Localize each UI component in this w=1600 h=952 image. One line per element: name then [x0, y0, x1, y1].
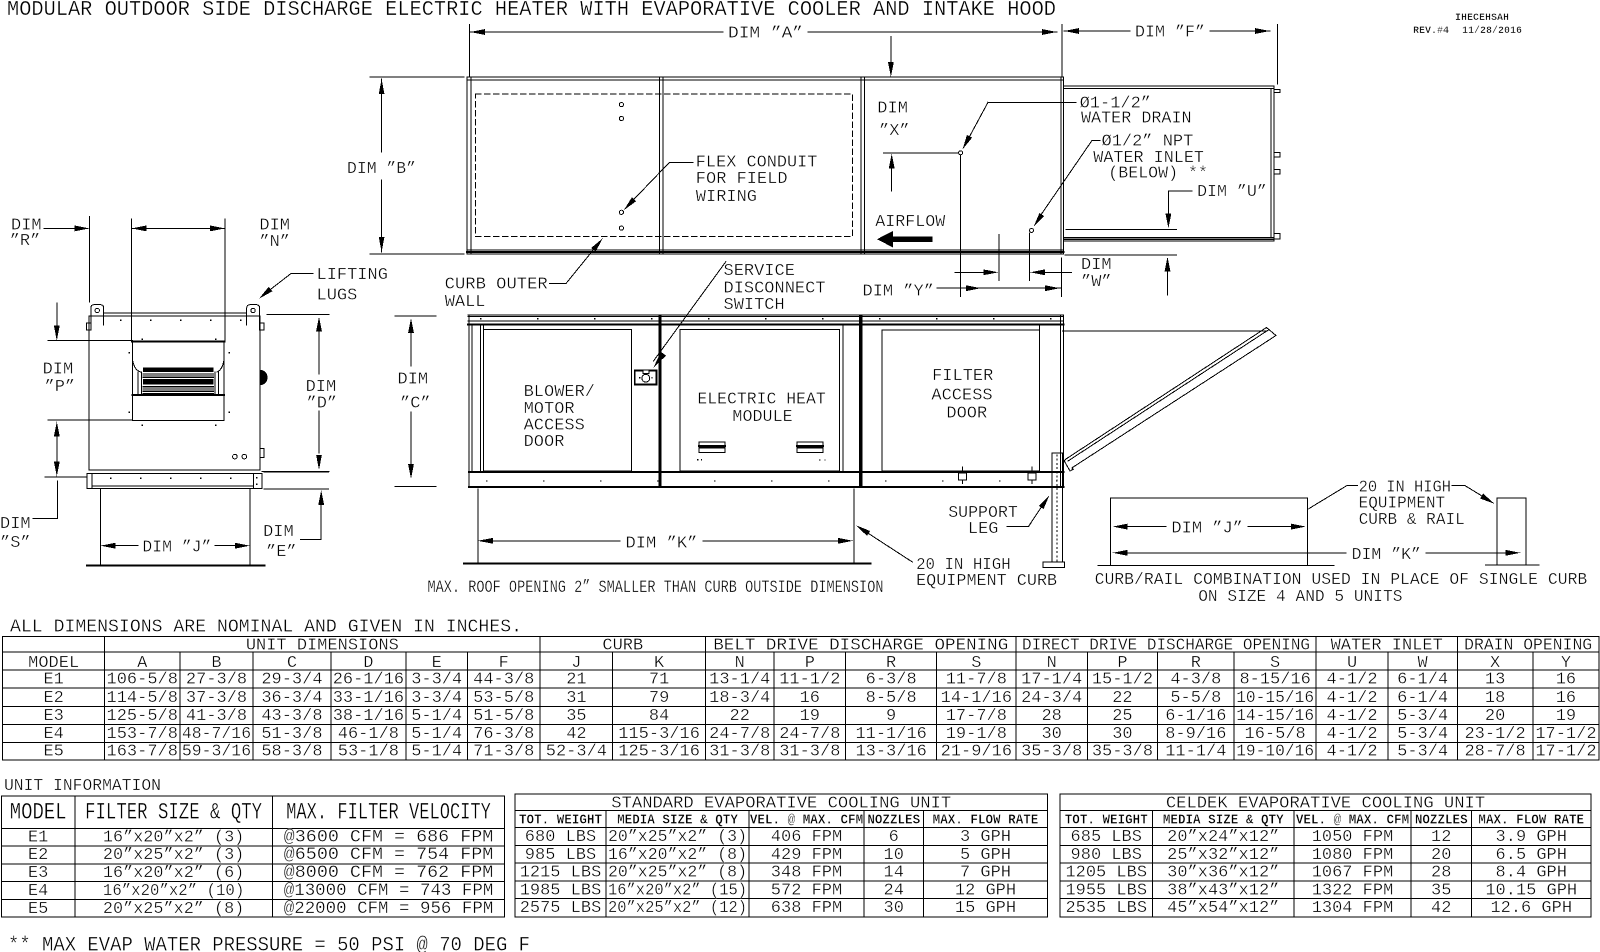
svg-text:71-3/8: 71-3/8 [473, 742, 534, 761]
svg-text:5-1/4: 5-1/4 [411, 725, 462, 744]
svg-text:84: 84 [649, 707, 669, 726]
svg-text:DIM: DIM [398, 371, 429, 390]
svg-text:TOT. WEIGHT: TOT. WEIGHT [519, 814, 602, 829]
svg-text:MODULE: MODULE [732, 408, 792, 427]
svg-text:638 FPM: 638 FPM [771, 899, 842, 918]
svg-text:1985 LBS: 1985 LBS [520, 881, 602, 900]
svg-text:11-1/2: 11-1/2 [779, 671, 840, 690]
svg-text:16”x20”x2” (10): 16”x20”x2” (10) [103, 882, 244, 901]
svg-text:8-15/16: 8-15/16 [1239, 671, 1310, 690]
svg-text:31-3/8: 31-3/8 [779, 742, 840, 761]
svg-text:12.6 GPH: 12.6 GPH [1490, 899, 1572, 918]
svg-text:36-3/4: 36-3/4 [261, 689, 322, 708]
svg-text:5-1/4: 5-1/4 [411, 707, 462, 726]
svg-text:53-5/8: 53-5/8 [473, 689, 534, 708]
svg-text:31-3/8: 31-3/8 [709, 742, 770, 761]
svg-text:E3: E3 [43, 707, 63, 726]
svg-text:20”x25”x2” (8): 20”x25”x2” (8) [608, 864, 747, 883]
svg-text:3 GPH: 3 GPH [960, 828, 1011, 847]
svg-text:DIM ”U”: DIM ”U” [1197, 183, 1267, 202]
svg-text:1322 FPM: 1322 FPM [1312, 881, 1394, 900]
svg-text:”P”: ”P” [45, 378, 76, 397]
svg-text:125-5/8: 125-5/8 [107, 707, 178, 726]
svg-text:11-1/16: 11-1/16 [855, 725, 926, 744]
svg-text:18: 18 [1485, 689, 1505, 708]
svg-text:125-3/16: 125-3/16 [618, 742, 700, 761]
svg-text:41-3/8: 41-3/8 [186, 707, 247, 726]
svg-text:15-1/2: 15-1/2 [1092, 671, 1153, 690]
svg-text:6-1/16: 6-1/16 [1165, 707, 1226, 726]
svg-text:UNIT INFORMATION: UNIT INFORMATION [4, 777, 161, 796]
svg-text:13: 13 [1485, 671, 1505, 690]
svg-text:685 LBS: 685 LBS [1071, 828, 1142, 847]
svg-text:DIM ”F”: DIM ”F” [1135, 24, 1205, 43]
svg-text:1205 LBS: 1205 LBS [1065, 864, 1147, 883]
svg-text:WIRING: WIRING [696, 188, 757, 207]
svg-text:6-1/4: 6-1/4 [1397, 671, 1448, 690]
svg-text:406 FPM: 406 FPM [771, 828, 842, 847]
svg-text:2575 LBS: 2575 LBS [520, 899, 602, 918]
svg-text:19: 19 [800, 707, 820, 726]
svg-text:44-3/8: 44-3/8 [473, 671, 534, 690]
svg-text:STANDARD EVAPORATIVE COOLING U: STANDARD EVAPORATIVE COOLING UNIT [611, 795, 951, 814]
svg-text:IHECEHSAH: IHECEHSAH [1455, 13, 1509, 24]
svg-text:3-3/4: 3-3/4 [411, 689, 462, 708]
svg-text:23-1/2: 23-1/2 [1464, 725, 1525, 744]
svg-text:E1: E1 [43, 671, 63, 690]
svg-text:4-1/2: 4-1/2 [1327, 725, 1378, 744]
svg-text:”W”: ”W” [1081, 273, 1112, 292]
svg-text:BLOWER/: BLOWER/ [524, 383, 595, 402]
svg-text:CURB: CURB [602, 637, 643, 656]
svg-text:E5: E5 [43, 742, 63, 761]
svg-text:1080 FPM: 1080 FPM [1312, 846, 1394, 865]
svg-text:8-9/16: 8-9/16 [1165, 725, 1226, 744]
svg-text:ELECTRIC HEAT: ELECTRIC HEAT [697, 391, 825, 410]
svg-text:20”x25”x2” (8): 20”x25”x2” (8) [103, 900, 244, 919]
svg-text:3.9 GPH: 3.9 GPH [1496, 828, 1567, 847]
svg-text:21-9/16: 21-9/16 [941, 742, 1012, 761]
svg-text:19: 19 [1556, 707, 1576, 726]
svg-text:UNIT DIMENSIONS: UNIT DIMENSIONS [246, 637, 399, 656]
svg-text:(BELOW) **: (BELOW) ** [1108, 164, 1208, 183]
svg-text:28-7/8: 28-7/8 [1464, 742, 1525, 761]
svg-text:”N”: ”N” [259, 233, 290, 252]
svg-text:28: 28 [1041, 707, 1061, 726]
svg-text:37-3/8: 37-3/8 [186, 689, 247, 708]
svg-text:MAX. FILTER VELOCITY: MAX. FILTER VELOCITY [286, 800, 491, 826]
svg-text:WALL: WALL [445, 293, 486, 312]
svg-text:6: 6 [889, 828, 899, 847]
svg-text:10.15 GPH: 10.15 GPH [1485, 881, 1577, 900]
svg-text:1067 FPM: 1067 FPM [1312, 864, 1394, 883]
svg-text:16”x20”x2” (15): 16”x20”x2” (15) [608, 881, 747, 900]
svg-text:20”x25”x2” (12): 20”x25”x2” (12) [608, 899, 747, 918]
svg-text:FILTER SIZE & QTY: FILTER SIZE & QTY [85, 800, 262, 826]
svg-text:16: 16 [800, 689, 820, 708]
svg-text:19-10/16: 19-10/16 [1236, 742, 1314, 761]
svg-text:16: 16 [1556, 671, 1576, 690]
svg-text:7 GPH: 7 GPH [960, 864, 1011, 883]
svg-text:1304 FPM: 1304 FPM [1312, 899, 1394, 918]
svg-text:LIFTING: LIFTING [317, 266, 388, 285]
svg-text:16: 16 [1556, 689, 1576, 708]
svg-text:20”x25”x2” (3): 20”x25”x2” (3) [608, 828, 747, 847]
svg-text:14-1/16: 14-1/16 [941, 689, 1012, 708]
svg-text:8.4 GPH: 8.4 GPH [1496, 864, 1567, 883]
svg-text:348 FPM: 348 FPM [771, 864, 842, 883]
svg-text:ALL DIMENSIONS ARE NOMINAL AND: ALL DIMENSIONS ARE NOMINAL AND GIVEN IN … [10, 618, 522, 638]
svg-text:20: 20 [1485, 707, 1505, 726]
svg-text:38-1/16: 38-1/16 [333, 707, 404, 726]
svg-text:E2: E2 [43, 689, 63, 708]
svg-text:20”x25”x2” (3): 20”x25”x2” (3) [103, 846, 244, 865]
svg-text:30: 30 [884, 899, 904, 918]
svg-text:33-1/16: 33-1/16 [333, 689, 404, 708]
svg-text:E4: E4 [43, 725, 63, 744]
svg-text:6-3/8: 6-3/8 [866, 671, 917, 690]
svg-text:30: 30 [1112, 725, 1132, 744]
svg-text:LEG: LEG [968, 520, 999, 539]
svg-text:52-3/4: 52-3/4 [546, 742, 607, 761]
svg-text:6-1/4: 6-1/4 [1397, 689, 1448, 708]
svg-text:25: 25 [1112, 707, 1132, 726]
svg-text:DIM ”A”: DIM ”A” [728, 25, 803, 44]
svg-text:25”x32”x12”: 25”x32”x12” [1167, 846, 1279, 865]
svg-text:CURB & RAIL: CURB & RAIL [1359, 511, 1465, 530]
svg-text:27-3/8: 27-3/8 [186, 671, 247, 690]
svg-text:51-3/8: 51-3/8 [261, 725, 322, 744]
svg-text:SERVICE: SERVICE [724, 262, 795, 281]
svg-text:24-7/8: 24-7/8 [779, 725, 840, 744]
svg-text:22: 22 [1112, 689, 1132, 708]
svg-text:WATER INLET: WATER INLET [1331, 637, 1443, 656]
svg-text:46-1/8: 46-1/8 [338, 725, 399, 744]
svg-text:5-1/4: 5-1/4 [411, 742, 462, 761]
svg-text:DIRECT DRIVE DISCHARGE OPENING: DIRECT DRIVE DISCHARGE OPENING [1022, 637, 1310, 656]
svg-text:19-1/8: 19-1/8 [946, 725, 1007, 744]
svg-text:”S”: ”S” [0, 534, 31, 553]
svg-text:42: 42 [1431, 899, 1451, 918]
svg-text:35: 35 [1431, 881, 1451, 900]
svg-text:AIRFLOW: AIRFLOW [875, 213, 946, 232]
svg-text:WATER DRAIN: WATER DRAIN [1081, 110, 1192, 129]
svg-text:16”x20”x2” (3): 16”x20”x2” (3) [103, 829, 244, 848]
svg-text:4-1/2: 4-1/2 [1327, 689, 1378, 708]
svg-text:11-1/4: 11-1/4 [1165, 742, 1226, 761]
svg-text:17-1/4: 17-1/4 [1021, 671, 1082, 690]
svg-text:DIM: DIM [43, 361, 74, 380]
svg-text:680 LBS: 680 LBS [525, 828, 596, 847]
svg-text:DIM ”K”: DIM ”K” [1352, 546, 1421, 565]
svg-text:”D”: ”D” [307, 395, 338, 414]
svg-text:572 FPM: 572 FPM [771, 881, 842, 900]
svg-text:DRAIN OPENING: DRAIN OPENING [1464, 637, 1592, 656]
svg-text:51-5/8: 51-5/8 [473, 707, 534, 726]
svg-text:14-15/16: 14-15/16 [1236, 707, 1314, 726]
svg-text:429 FPM: 429 FPM [771, 846, 842, 865]
svg-text:ON SIZE 4 AND 5 UNITS: ON SIZE 4 AND 5 UNITS [1198, 588, 1402, 607]
svg-text:1050 FPM: 1050 FPM [1312, 828, 1394, 847]
svg-text:FOR FIELD: FOR FIELD [696, 170, 788, 189]
svg-text:NOZZLES: NOZZLES [1415, 814, 1468, 829]
svg-text:DIM ”K”: DIM ”K” [626, 534, 698, 553]
svg-text:35-3/8: 35-3/8 [1021, 742, 1082, 761]
svg-text:115-3/16: 115-3/16 [618, 725, 700, 744]
svg-text:16”x20”x2” (6): 16”x20”x2” (6) [103, 864, 244, 883]
svg-text:MODULAR OUTDOOR SIDE DISCHARGE: MODULAR OUTDOOR SIDE DISCHARGE ELECTRIC … [7, 0, 1056, 22]
svg-text:9: 9 [886, 707, 896, 726]
svg-text:13-1/4: 13-1/4 [709, 671, 770, 690]
svg-text:CELDEK EVAPORATIVE COOLING UNI: CELDEK EVAPORATIVE COOLING UNIT [1166, 795, 1485, 814]
svg-text:28: 28 [1431, 864, 1451, 883]
svg-text:4-1/2: 4-1/2 [1327, 707, 1378, 726]
svg-text:DIM ”J”: DIM ”J” [1171, 519, 1243, 538]
svg-text:5 GPH: 5 GPH [960, 846, 1011, 865]
svg-text:43-3/8: 43-3/8 [261, 707, 322, 726]
svg-text:22: 22 [730, 707, 750, 726]
svg-text:CURB OUTER: CURB OUTER [445, 276, 548, 295]
svg-text:E4: E4 [28, 882, 48, 901]
svg-text:24-3/4: 24-3/4 [1021, 689, 1082, 708]
svg-text:2535 LBS: 2535 LBS [1065, 899, 1147, 918]
svg-text:** MAX EVAP WATER PRESSURE = 5: ** MAX EVAP WATER PRESSURE = 50 PSI @ 70… [8, 935, 530, 952]
svg-text:76-3/8: 76-3/8 [473, 725, 534, 744]
svg-text:35: 35 [566, 707, 586, 726]
svg-text:E5: E5 [28, 900, 48, 919]
svg-text:48-7/16: 48-7/16 [182, 725, 251, 744]
svg-text:35-3/8: 35-3/8 [1092, 742, 1153, 761]
svg-text:21: 21 [566, 671, 586, 690]
svg-text:MAX. FLOW RATE: MAX. FLOW RATE [1478, 814, 1584, 829]
svg-text:DIM ”Y”: DIM ”Y” [863, 283, 934, 302]
svg-text:5-5/8: 5-5/8 [1170, 689, 1221, 708]
svg-text:REV.#4: REV.#4 [1413, 26, 1449, 37]
svg-text:E1: E1 [28, 829, 48, 848]
svg-text:15 GPH: 15 GPH [955, 899, 1016, 918]
svg-text:20: 20 [1431, 846, 1451, 865]
svg-text:VEL. @ MAX. CFM: VEL. @ MAX. CFM [1296, 814, 1409, 829]
svg-text:980 LBS: 980 LBS [1071, 846, 1142, 865]
svg-text:”E”: ”E” [266, 543, 297, 562]
svg-text:5-3/4: 5-3/4 [1397, 742, 1448, 761]
svg-text:42: 42 [566, 725, 586, 744]
svg-text:DOOR: DOOR [946, 404, 987, 423]
svg-text:18-3/4: 18-3/4 [709, 689, 770, 708]
svg-text:E2: E2 [28, 846, 48, 865]
svg-text:20”x24”x12”: 20”x24”x12” [1167, 828, 1279, 847]
svg-text:BELT DRIVE DISCHARGE OPENING: BELT DRIVE DISCHARGE OPENING [713, 637, 1008, 656]
svg-text:153-7/8: 153-7/8 [107, 725, 178, 744]
svg-text:106-5/8: 106-5/8 [107, 671, 178, 690]
svg-text:16-5/8: 16-5/8 [1245, 725, 1306, 744]
svg-text:SWITCH: SWITCH [724, 296, 785, 315]
svg-text:985 LBS: 985 LBS [525, 846, 596, 865]
svg-text:17-7/8: 17-7/8 [946, 707, 1007, 726]
svg-text:59-3/16: 59-3/16 [182, 742, 251, 761]
svg-text:MEDIA SIZE & QTY: MEDIA SIZE & QTY [617, 814, 739, 829]
svg-text:DIM ”B”: DIM ”B” [347, 160, 416, 179]
svg-text:DIM ”J”: DIM ”J” [142, 539, 211, 558]
svg-text:4-1/2: 4-1/2 [1327, 671, 1378, 690]
svg-text:E3: E3 [28, 864, 48, 883]
svg-text:ACCESS: ACCESS [931, 386, 992, 405]
svg-text:VEL. @ MAX. CFM: VEL. @ MAX. CFM [750, 814, 863, 829]
svg-text:MAX. FLOW RATE: MAX. FLOW RATE [933, 814, 1039, 829]
svg-text:EQUIPMENT CURB: EQUIPMENT CURB [916, 572, 1057, 591]
svg-text:14: 14 [884, 864, 904, 883]
svg-text:17-1/2: 17-1/2 [1535, 725, 1596, 744]
svg-text:24-7/8: 24-7/8 [709, 725, 770, 744]
svg-text:CURB/RAIL COMBINATION USED IN: CURB/RAIL COMBINATION USED IN PLACE OF S… [1095, 571, 1588, 590]
svg-text:114-5/8: 114-5/8 [107, 689, 178, 708]
svg-text:71: 71 [649, 671, 669, 690]
svg-text:53-1/8: 53-1/8 [338, 742, 399, 761]
svg-text:29-3/4: 29-3/4 [261, 671, 322, 690]
svg-text:24: 24 [884, 881, 904, 900]
svg-text:”C”: ”C” [400, 394, 431, 413]
svg-text:11/28/2016: 11/28/2016 [1462, 25, 1522, 37]
svg-text:1215 LBS: 1215 LBS [520, 864, 602, 883]
svg-text:FILTER: FILTER [932, 367, 993, 386]
svg-text:DOOR: DOOR [524, 433, 565, 452]
svg-text:11-7/8: 11-7/8 [946, 671, 1007, 690]
svg-text:”X”: ”X” [879, 122, 910, 141]
svg-text:5-3/4: 5-3/4 [1397, 707, 1448, 726]
svg-text:10: 10 [884, 846, 904, 865]
svg-text:31: 31 [566, 689, 586, 708]
svg-text:79: 79 [649, 689, 669, 708]
svg-text:17-1/2: 17-1/2 [1535, 742, 1596, 761]
svg-text:10-15/16: 10-15/16 [1236, 689, 1314, 708]
svg-text:58-3/8: 58-3/8 [261, 742, 322, 761]
svg-text:”R”: ”R” [10, 232, 41, 251]
svg-text:16”x20”x2” (8): 16”x20”x2” (8) [608, 846, 747, 865]
svg-text:13-3/16: 13-3/16 [855, 742, 926, 761]
svg-text:45”x54”x12”: 45”x54”x12” [1167, 899, 1279, 918]
svg-text:6.5 GPH: 6.5 GPH [1496, 846, 1567, 865]
svg-text:38”x43”x12”: 38”x43”x12” [1167, 881, 1279, 900]
svg-text:30: 30 [1041, 725, 1061, 744]
svg-text:DIM: DIM [263, 523, 294, 542]
svg-text:@22000 CFM = 956 FPM: @22000 CFM = 956 FPM [284, 899, 494, 919]
svg-text:3-3/4: 3-3/4 [411, 671, 462, 690]
svg-text:TOT. WEIGHT: TOT. WEIGHT [1065, 814, 1148, 829]
svg-text:MODEL: MODEL [10, 800, 67, 826]
svg-text:30”x36”x12”: 30”x36”x12” [1167, 864, 1279, 883]
svg-text:MEDIA SIZE & QTY: MEDIA SIZE & QTY [1163, 814, 1285, 829]
svg-text:1955 LBS: 1955 LBS [1065, 881, 1147, 900]
svg-text:DIM: DIM [0, 515, 31, 534]
svg-text:8-5/8: 8-5/8 [866, 689, 917, 708]
svg-text:MAX. ROOF OPENING 2” SMALLER T: MAX. ROOF OPENING 2” SMALLER THAN CURB O… [428, 578, 884, 598]
svg-text:4-1/2: 4-1/2 [1327, 742, 1378, 761]
svg-text:4-3/8: 4-3/8 [1170, 671, 1221, 690]
svg-text:12 GPH: 12 GPH [955, 881, 1016, 900]
svg-text:NOZZLES: NOZZLES [867, 814, 920, 829]
svg-text:163-7/8: 163-7/8 [107, 742, 178, 761]
svg-text:5-3/4: 5-3/4 [1397, 725, 1448, 744]
svg-text:26-1/16: 26-1/16 [333, 671, 404, 690]
svg-text:DIM: DIM [877, 100, 908, 119]
svg-text:LUGS: LUGS [317, 287, 358, 306]
svg-text:12: 12 [1431, 828, 1451, 847]
